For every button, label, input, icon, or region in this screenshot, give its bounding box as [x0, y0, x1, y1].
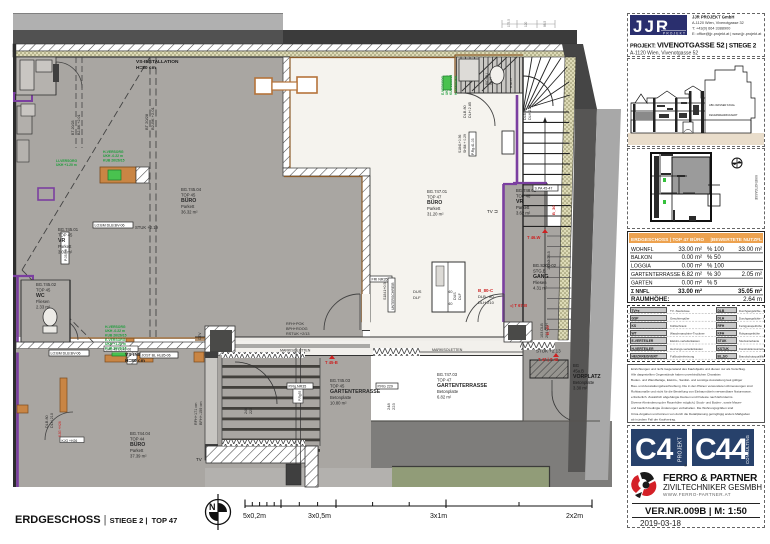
svg-text:BL,SO: BL,SO: [718, 354, 729, 358]
svg-text:Durchgangslichte - Höhe: Durchgangslichte - Höhe: [739, 316, 770, 320]
svg-text:% 50: % 50: [707, 255, 721, 261]
svg-text:|BEWERTETE NUTZFL: |BEWERTETE NUTZFL: [711, 237, 763, 243]
svg-text:Einrichtungen und nicht Gegens: Einrichtungen und nicht Gegenstand des K…: [631, 367, 746, 371]
svg-text:Durchgangslichte - Breite: Durchgangslichte - Breite: [739, 309, 770, 313]
svg-text:33.00 m²: 33.00 m²: [738, 247, 762, 253]
svg-text:% 5: % 5: [707, 280, 718, 286]
svg-text:RAUMHÖHE:: RAUMHÖHE:: [631, 296, 670, 303]
svg-text:KFH: KFH: [718, 332, 725, 336]
svg-text:®: ®: [684, 463, 687, 468]
svg-text:TV+e: TV+e: [632, 309, 640, 313]
svg-text:Geschirrspüler: Geschirrspüler: [670, 316, 690, 320]
svg-text:T: +43(0) 664 3388900: T: +43(0) 664 3388900: [692, 27, 730, 31]
svg-text:0.00 m²: 0.00 m²: [682, 280, 702, 286]
svg-text:DLH: DLH: [718, 316, 725, 320]
svg-text:TV -Steckdose: TV -Steckdose: [670, 309, 690, 313]
svg-text:Rohbaumaße und nicht für die B: Rohbaumaße und nicht für die Bestellung …: [631, 389, 752, 393]
svg-text:E: office@jjr-projekt.at | www: E: office@jjr-projekt.at | www.jjr-proje…: [692, 32, 762, 36]
svg-text:PROJEKT: PROJEKT: [678, 437, 684, 462]
svg-text:Konstruktionsunterkante: Konstruktionsunterkante: [739, 347, 770, 351]
svg-text:0.00 m²: 0.00 m²: [682, 264, 702, 270]
svg-text:erforderlich. Zusätzlich abgeh: erforderlich. Zusätzlich abgehängte Deck…: [631, 395, 733, 399]
svg-text:2.64 m: 2.64 m: [743, 296, 762, 303]
svg-text:GARTENTERRASSE: GARTENTERRASSE: [631, 272, 681, 278]
svg-text:C4: C4: [635, 433, 674, 466]
svg-text:GSP: GSP: [632, 316, 640, 320]
svg-text:E-VERTEILER: E-VERTEILER: [632, 339, 654, 343]
svg-text:PROJEKT: PROJEKT: [663, 31, 686, 35]
svg-text:Fußbodenheizung: Fußbodenheizung: [670, 354, 695, 358]
svg-text:GARTEN: GARTEN: [631, 280, 653, 286]
svg-text:2019-03-18: 2019-03-18: [640, 519, 681, 528]
svg-text:HEIZKREISVERT: HEIZKREISVERT: [632, 354, 658, 358]
svg-text:% 100: % 100: [707, 247, 725, 253]
svg-text:RFH: RFH: [718, 324, 725, 328]
svg-text:A-1120 Wien, Vivenotgasse 52: A-1120 Wien, Vivenotgasse 52: [630, 51, 698, 57]
svg-text:35.05 m²: 35.05 m²: [738, 288, 762, 295]
svg-text:JJR PROJEKT GmbH: JJR PROJEKT GmbH: [692, 15, 734, 20]
svg-text:Heizungs-verteilerkasten: Heizungs-verteilerkasten: [670, 347, 703, 351]
svg-text:PROJEKT: VIVENOTGASSE 52 | S: PROJEKT: VIVENOTGASSE 52 | STIEGE 2: [630, 41, 757, 50]
svg-text:Rohparapethöhe: Rohparapethöhe: [739, 332, 760, 336]
svg-text:WT: WT: [632, 332, 637, 336]
svg-text:CONSULTING: CONSULTING: [745, 435, 750, 464]
svg-text:6.82 m²: 6.82 m²: [682, 272, 702, 278]
svg-text:DLB: DLB: [718, 309, 725, 313]
svg-text:BALKON: BALKON: [631, 255, 652, 261]
svg-text:Circa-Angaben und können von d: Circa-Angaben und können von durch die D…: [631, 412, 750, 416]
svg-text:Boden- und Wandbeläge, Elektro: Boden- und Wandbeläge, Elektro-, Sanitär…: [631, 378, 742, 382]
svg-text:Bau- und Ausstattungsbeschreib: Bau- und Ausstattungsbeschreibung. Die i…: [631, 384, 753, 388]
svg-text:WOHNFL: WOHNFL: [631, 247, 654, 253]
svg-text:% 30: % 30: [707, 272, 721, 278]
svg-text:ab in jedem Fall der Kaufvertr: ab in jedem Fall der Kaufvertrag.: [631, 417, 676, 421]
svg-text:H-VERTEILER: H-VERTEILER: [632, 347, 655, 351]
svg-text:Waschmaschine-Trockner: Waschmaschine-Trockner: [670, 332, 705, 336]
svg-text:Brandschutzqualifikation: Brandschutzqualifikation: [739, 354, 770, 358]
svg-text:Elektro-verteilerkasten: Elektro-verteilerkasten: [670, 339, 700, 343]
svg-text:Fertigparapethöhe: Fertigparapethöhe: [739, 324, 762, 328]
svg-text:Alle dargestellten Gegenstände: Alle dargestellten Gegenstände haben unv…: [631, 373, 721, 377]
svg-text:Diverse Abminderung der Raumhö: Diverse Abminderung der Raumhöhe möglich…: [631, 401, 742, 405]
svg-text:LOGGIA: LOGGIA: [631, 264, 651, 270]
svg-text:2.05 m²: 2.05 m²: [742, 272, 762, 278]
svg-text:Stuckunterkante: Stuckunterkante: [739, 339, 760, 343]
svg-text:KS: KS: [632, 324, 637, 328]
svg-text:WWW.FERRO-PARTNER.AT: WWW.FERRO-PARTNER.AT: [663, 492, 731, 497]
svg-text:33.00 m²: 33.00 m²: [678, 288, 702, 295]
svg-text:Σ NNFL: Σ NNFL: [631, 289, 650, 295]
svg-text:KSTUK: KSTUK: [718, 347, 730, 351]
svg-text:33.00 m²: 33.00 m²: [678, 247, 702, 253]
svg-text:A-1120 Wien, Vivenotgasse 32: A-1120 Wien, Vivenotgasse 32: [692, 21, 744, 25]
svg-text:und bauliich bedingte Änderung: und bauliich bedingte Änderungen vorbeha…: [631, 406, 734, 410]
svg-text:C44: C44: [695, 433, 748, 466]
svg-text:ZIVILTECHNIKER GESMBH: ZIVILTECHNIKER GESMBH: [663, 483, 762, 492]
svg-text:0.00 m²: 0.00 m²: [682, 255, 702, 261]
svg-text:Kühlschrank: Kühlschrank: [670, 324, 687, 328]
svg-text:VER.NR.009B | M: 1:50: VER.NR.009B | M: 1:50: [645, 506, 747, 517]
svg-text:VIVENOTGASSE: VIVENOTGASSE: [754, 175, 758, 200]
svg-text:ERDGESCHOSS | TOP 47 BÜRO: ERDGESCHOSS | TOP 47 BÜRO: [631, 236, 704, 243]
svg-text:% 100: % 100: [707, 264, 725, 270]
svg-text:STUK: STUK: [718, 339, 728, 343]
